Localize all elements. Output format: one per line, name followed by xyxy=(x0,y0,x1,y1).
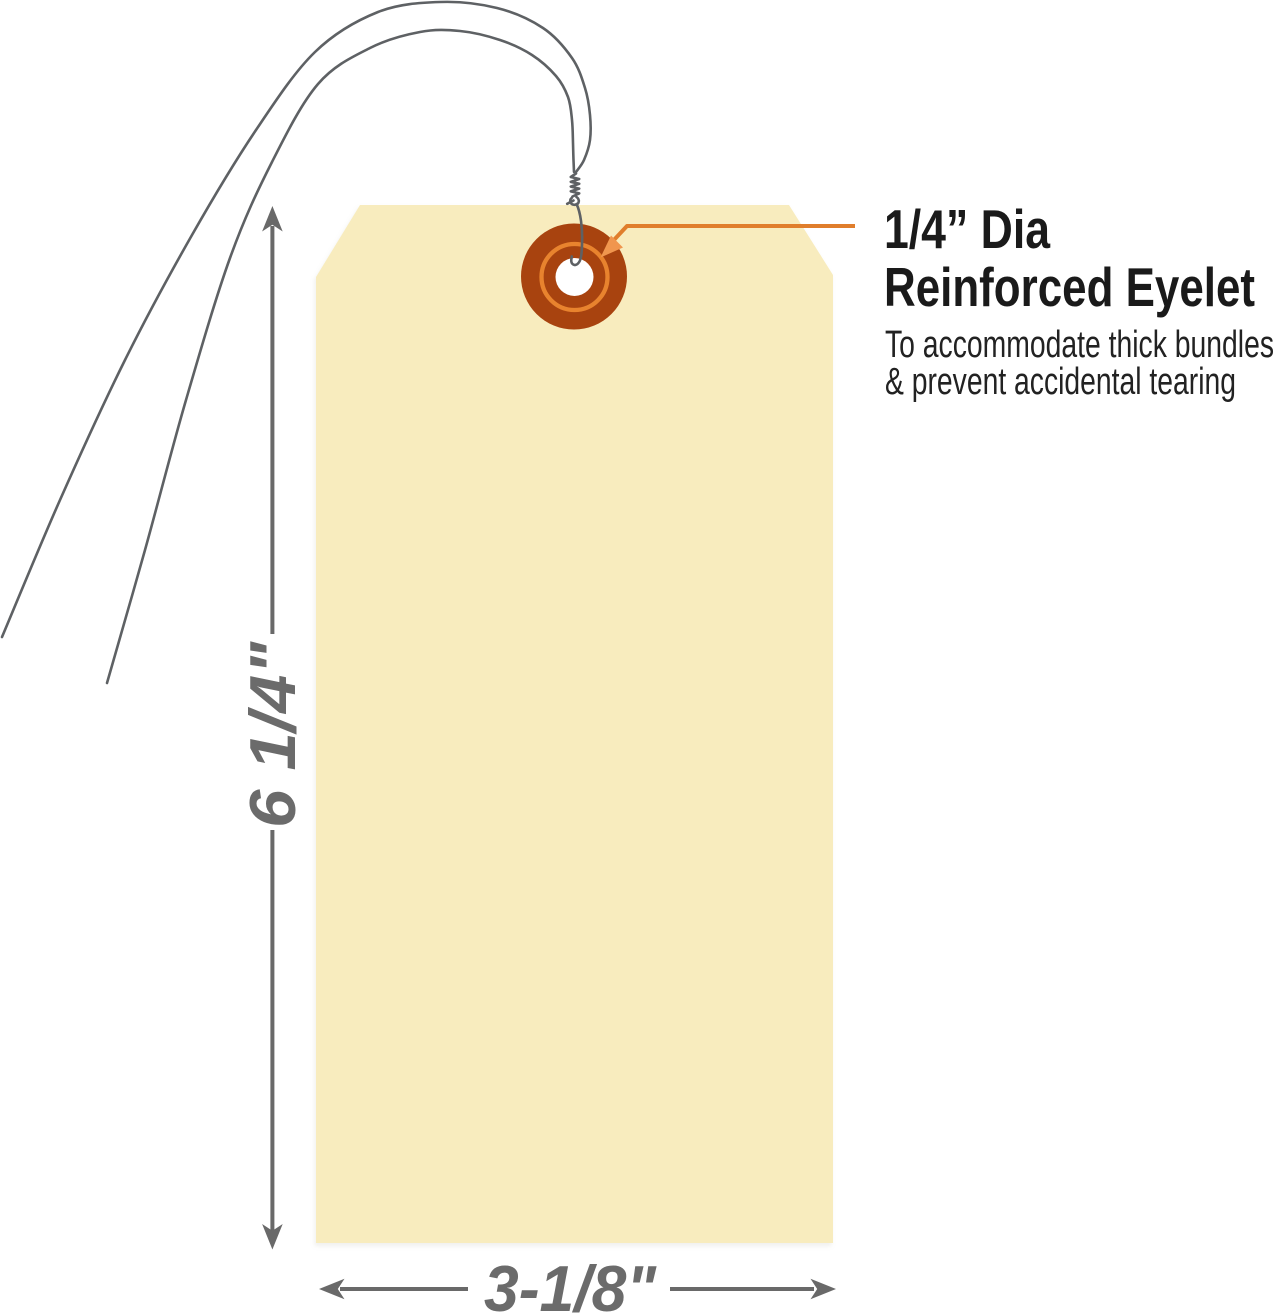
svg-text:Reinforced Eyelet: Reinforced Eyelet xyxy=(884,256,1255,318)
svg-text:To accommodate thick bundles: To accommodate thick bundles xyxy=(885,324,1274,366)
svg-text:1/4” Dia: 1/4” Dia xyxy=(884,198,1050,260)
svg-text:& prevent accidental tearing: & prevent accidental tearing xyxy=(885,361,1236,403)
svg-text:3-1/8": 3-1/8" xyxy=(484,1252,657,1315)
svg-text:6 1/4": 6 1/4" xyxy=(236,641,309,828)
